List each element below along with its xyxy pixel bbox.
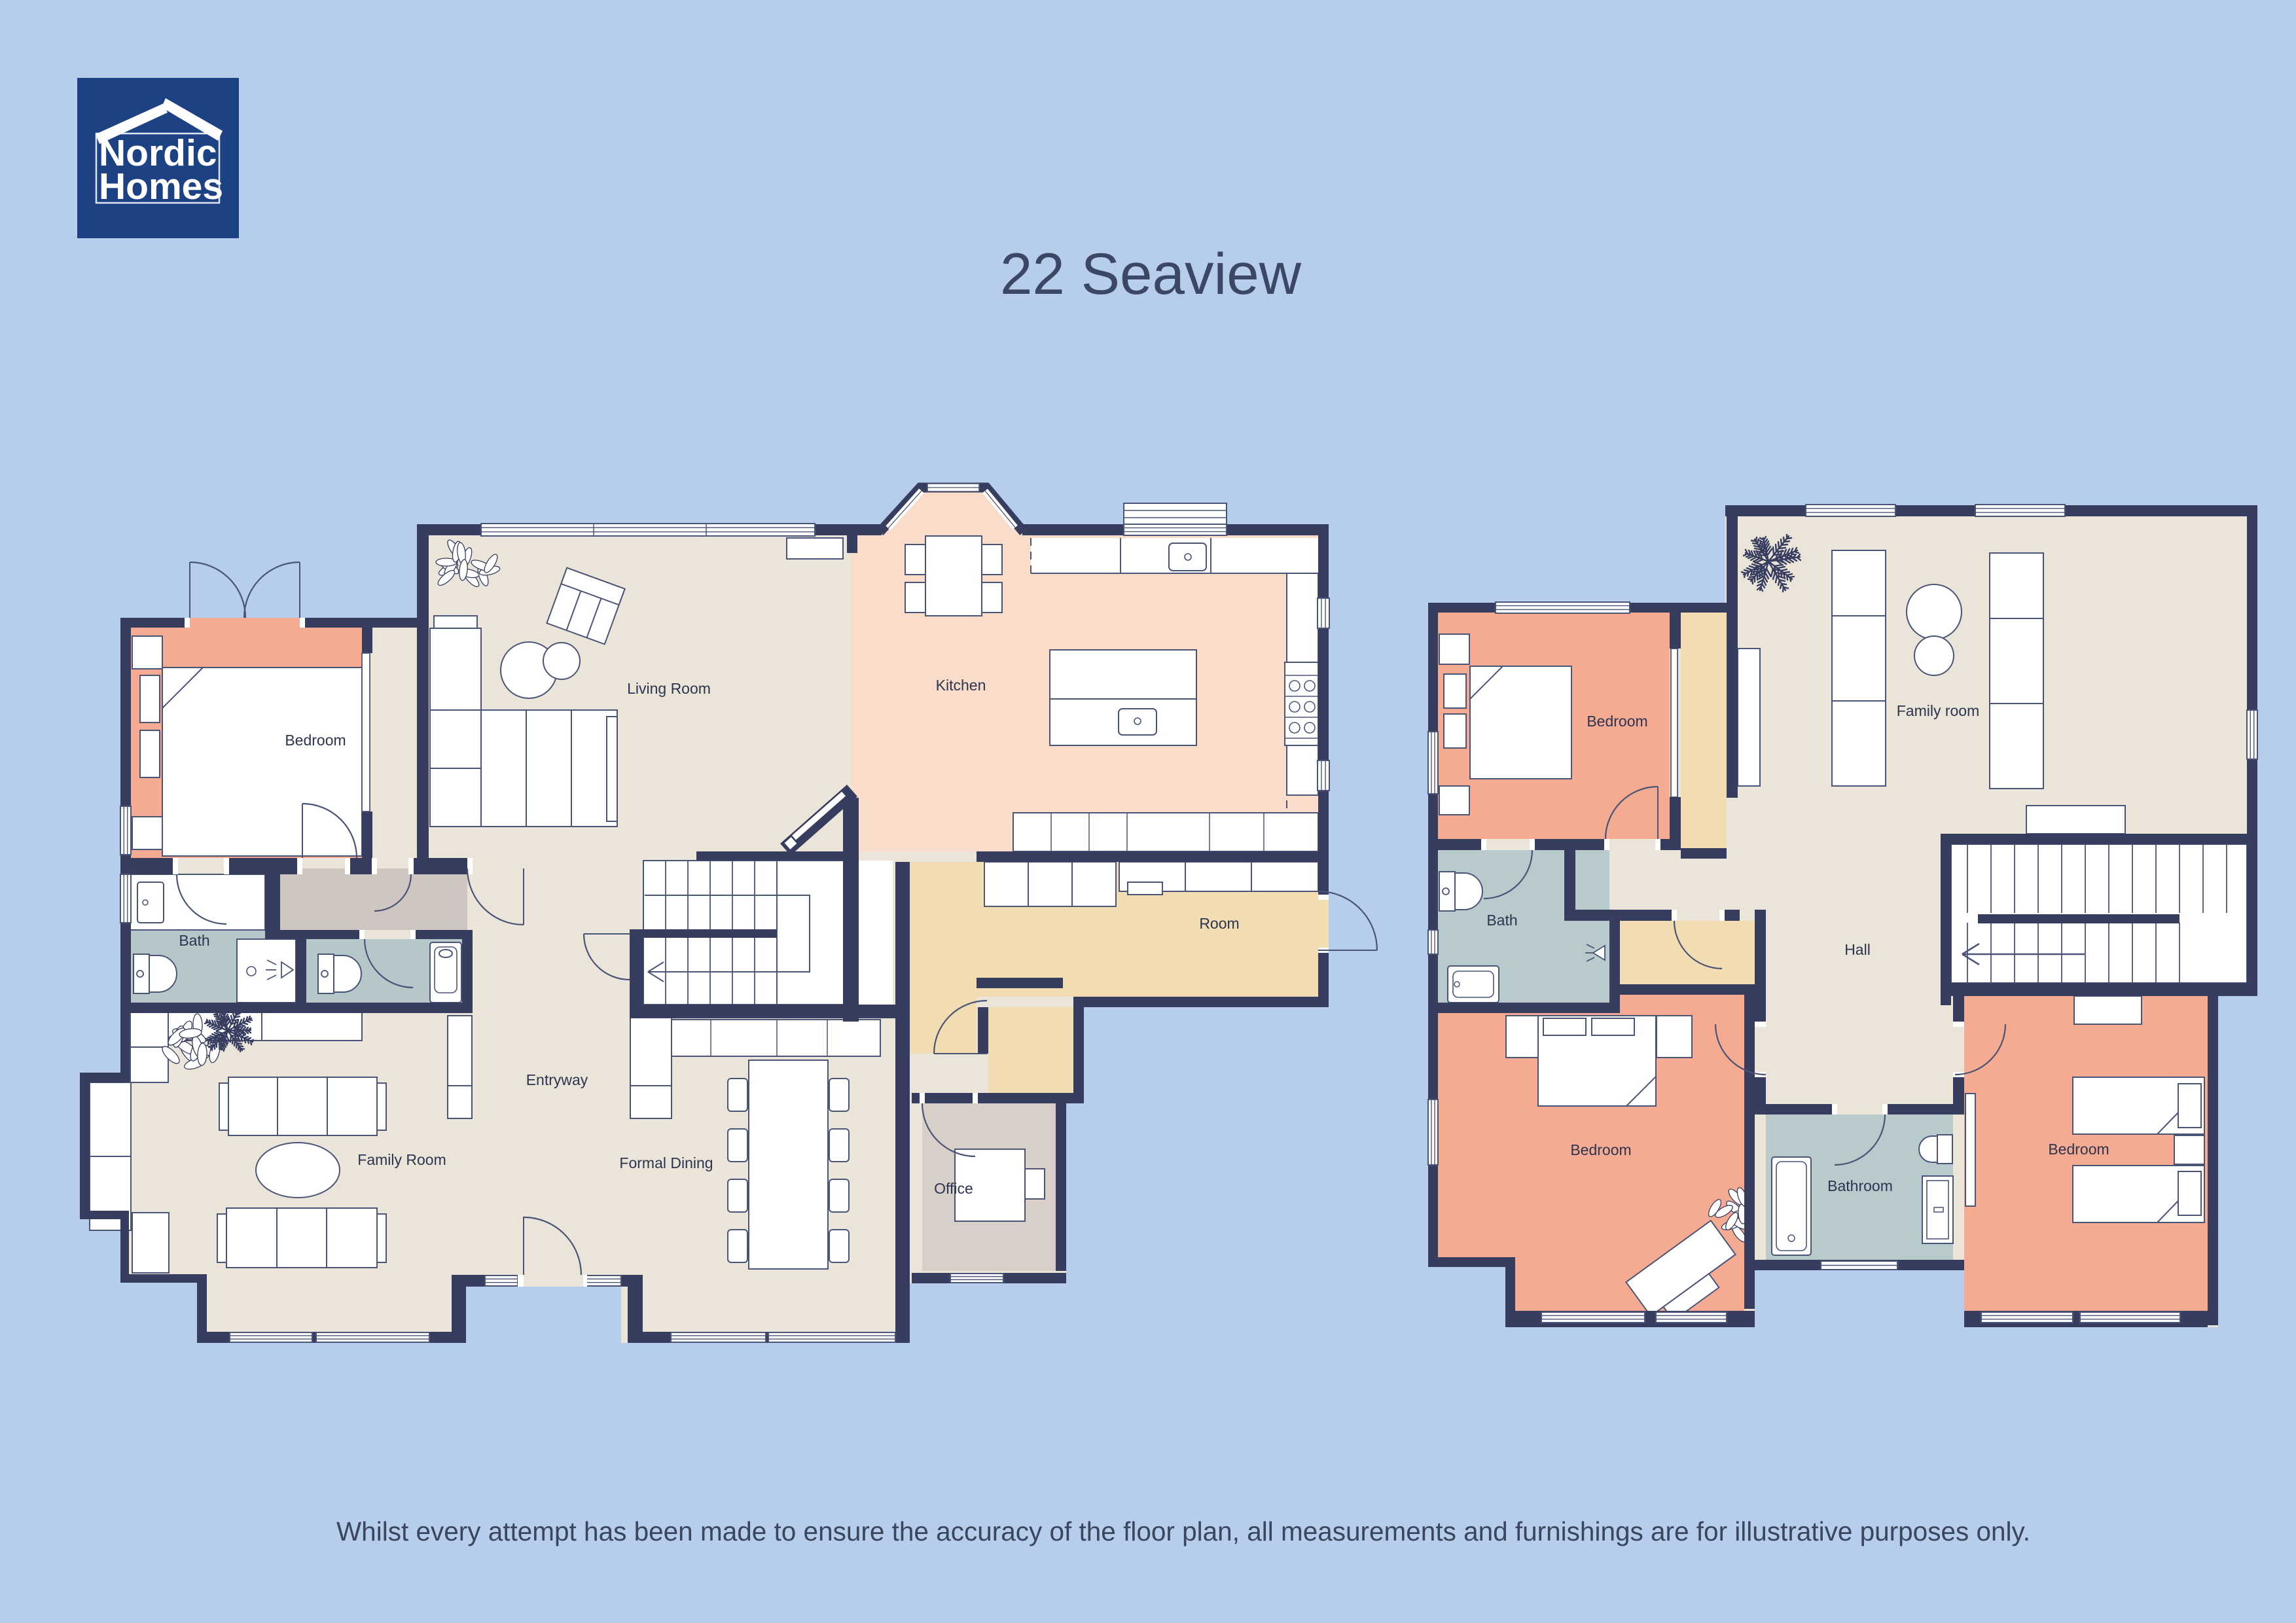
svg-text:Family room: Family room [1897, 702, 1980, 719]
svg-text:Bedroom: Bedroom [1570, 1141, 1631, 1158]
svg-text:Bathroom: Bathroom [1827, 1177, 1893, 1194]
svg-text:Hall: Hall [1844, 941, 1871, 958]
svg-text:Bath: Bath [1486, 912, 1517, 929]
svg-text:Bath: Bath [179, 932, 209, 949]
svg-text:Bedroom: Bedroom [1587, 713, 1647, 730]
svg-text:Living Room: Living Room [627, 680, 711, 697]
svg-text:Entryway: Entryway [526, 1071, 588, 1088]
svg-text:Office: Office [934, 1180, 973, 1197]
svg-text:Whilst every attempt has been: Whilst every attempt has been made to en… [336, 1516, 2030, 1546]
svg-text:Family Room: Family Room [357, 1151, 446, 1168]
svg-text:22 Seaview: 22 Seaview [1000, 241, 1302, 306]
svg-text:Formal Dining: Formal Dining [619, 1154, 713, 1171]
svg-text:Room: Room [1199, 915, 1239, 932]
svg-text:Homes: Homes [99, 166, 223, 207]
svg-text:Kitchen: Kitchen [936, 677, 986, 694]
svg-text:Bedroom: Bedroom [285, 732, 346, 749]
svg-text:Bedroom: Bedroom [2048, 1141, 2109, 1158]
